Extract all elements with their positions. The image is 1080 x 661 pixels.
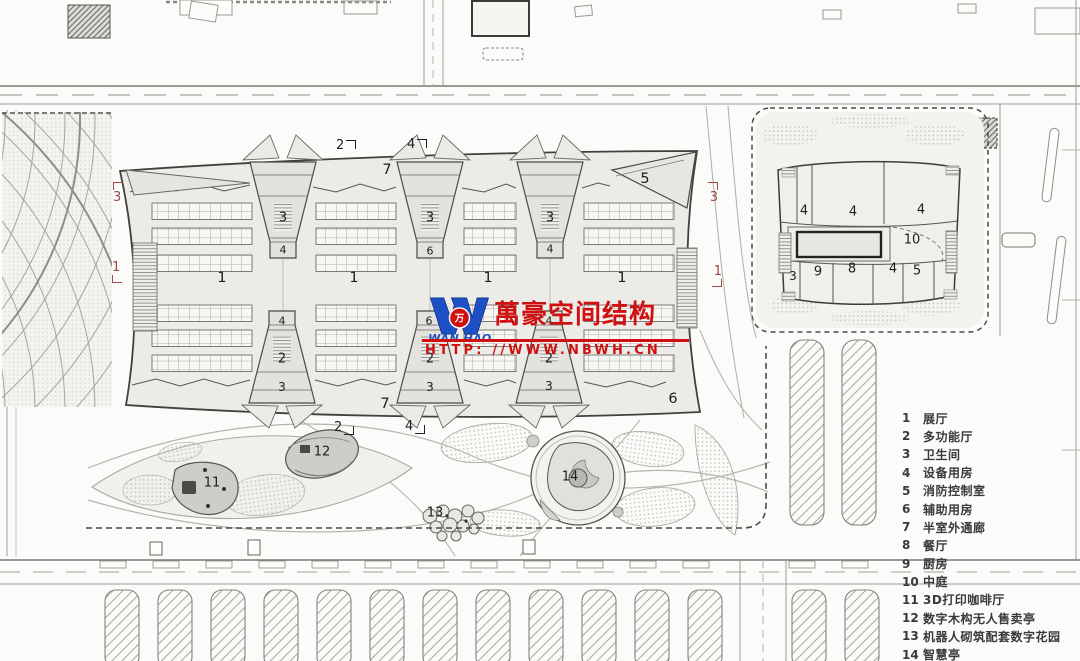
annex-room-label: 10	[904, 234, 921, 247]
legend-item: 1展厅	[902, 409, 1061, 427]
site-feature-label: 13	[427, 507, 444, 520]
core-tip-label: 4	[547, 244, 554, 255]
core-tip-label: 6	[427, 246, 434, 257]
hall-label: 1	[617, 271, 626, 286]
corridor-label: 7	[380, 397, 389, 412]
hall-label: 1	[483, 271, 492, 286]
section-marker-red: 3	[113, 182, 123, 204]
core-tip-label: 4	[279, 316, 286, 327]
watermark: 万 WAN HAO 萬豪空间结构 HTTP: //WWW.NBWH.CN	[420, 292, 695, 364]
legend-item: 13机器人砌筑配套数字花园	[902, 627, 1061, 645]
legend-item: 8餐厅	[902, 536, 1061, 554]
fire-room-label: 5	[640, 172, 649, 187]
section-marker-red: 1	[712, 265, 722, 287]
legend-item: 7半室外通廊	[902, 518, 1061, 536]
west-stair-strip	[133, 243, 157, 331]
core-label: 3	[426, 381, 434, 393]
legend-item: 4设备用房	[902, 464, 1061, 482]
legend-item: 6辅助用房	[902, 500, 1061, 518]
top-cores	[243, 135, 590, 258]
site-plan: 1 1 1 1 7 7 5 6 3 3 3 4 6 4 4 6 4 2 2 2 …	[0, 0, 1080, 661]
hall-label: 1	[349, 271, 358, 286]
annex-room-label: 8	[848, 263, 856, 276]
legend-item: 113D打印咖啡厅	[902, 591, 1061, 609]
legend-item: 12数字木构无人售卖亭	[902, 609, 1061, 627]
legend-item: 2多功能厅	[902, 427, 1061, 445]
section-marker: 2	[334, 421, 354, 435]
watermark-title: 萬豪空间结构	[494, 302, 656, 328]
site-feature-label: 14	[562, 471, 579, 484]
legend-item: 10中庭	[902, 573, 1061, 591]
site-feature-label: 12	[314, 446, 331, 459]
core-label: 3	[546, 212, 554, 225]
legend-item: 3卫生间	[902, 445, 1061, 463]
section-marker-red: 1	[112, 261, 122, 283]
legend-item: 5消防控制室	[902, 482, 1061, 500]
site-feature-label: 11	[204, 477, 221, 490]
hall-label: 1	[217, 271, 226, 286]
annex-building	[752, 108, 988, 332]
corridor-label: 7	[382, 163, 391, 178]
core-label: 3	[278, 381, 286, 393]
annex-room-label: 4	[800, 205, 808, 218]
section-marker: 2	[336, 139, 356, 152]
annex-room-label: 4	[849, 206, 857, 219]
annex-room-label: 9	[814, 266, 822, 279]
main-building	[120, 135, 700, 428]
legend: 1展厅 2多功能厅 3卫生间 4设备用房 5消防控制室 6辅助用房 7半室外通廊…	[902, 409, 1061, 661]
core-tip-label: 4	[280, 245, 287, 256]
core-label: 3	[279, 212, 287, 225]
annex-room-label: 4	[917, 204, 925, 217]
aux-room-label: 6	[668, 392, 677, 407]
core-label: 3	[545, 380, 553, 392]
section-marker-red: 3	[708, 182, 718, 204]
annex-room-label: 5	[913, 265, 921, 278]
annex-room-label: 3	[789, 270, 797, 282]
annex-room-label: 4	[889, 263, 897, 276]
core-label: 2	[278, 353, 286, 366]
section-marker: 4	[405, 420, 425, 434]
legend-item: 9厨房	[902, 555, 1061, 573]
wanhao-logo-icon: 万	[426, 296, 492, 336]
watermark-underline	[422, 339, 689, 342]
core-label: 3	[426, 212, 434, 225]
section-marker: 4	[407, 138, 427, 151]
svg-text:万: 万	[454, 314, 465, 325]
legend-item: 14智慧亭	[902, 645, 1061, 661]
watermark-url: HTTP: //WWW.NBWH.CN	[425, 344, 661, 357]
